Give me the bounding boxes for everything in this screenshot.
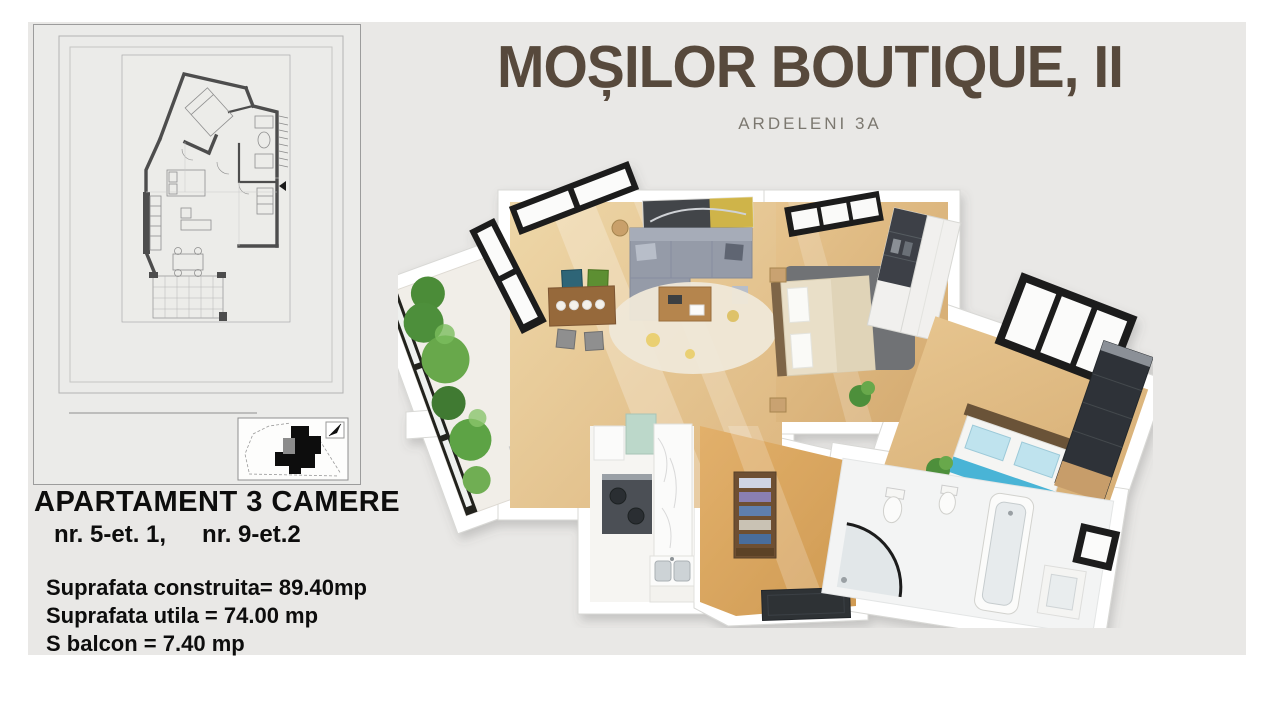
bed-1: [771, 276, 875, 377]
sofa-pillow: [635, 243, 657, 261]
area-line-usable: Suprafata utila = 74.00 mp: [46, 602, 367, 630]
dining-chair-teal: [562, 269, 583, 288]
content-area: MOȘILOR BOUTIQUE, II ARDELENI 3A APARTAM…: [28, 22, 1246, 655]
area-line-balcony: S balcon = 7.40 mp: [46, 630, 367, 658]
coffee-table: [659, 287, 711, 321]
apartment-heading: APARTAMENT 3 CAMERE: [34, 486, 400, 519]
kitchen-fridge: [594, 426, 624, 460]
technical-plan-svg: [33, 24, 361, 485]
kitchen-cabinet-mint: [626, 414, 656, 454]
dining-chair-green: [588, 270, 609, 289]
site-plan-inset: [238, 418, 348, 480]
kitchen-sink: [650, 556, 694, 586]
project-subtitle: ARDELENI 3A: [430, 114, 1190, 134]
wall-artwork: [643, 197, 754, 231]
kitchen-stove: [602, 474, 652, 534]
apartment-areas: Suprafata construita= 89.40mp Suprafata …: [46, 574, 367, 658]
dining-chair-gray-2: [584, 331, 603, 350]
side-table: [612, 220, 628, 236]
apartment-units: nr. 5-et. 1,nr. 9-et.2: [54, 521, 301, 549]
nightstand-2: [770, 398, 786, 412]
area-line-constructed: Suprafata construita= 89.40mp: [46, 574, 367, 602]
apartment-3d: [398, 161, 1153, 628]
kitchen-counter: [654, 424, 692, 558]
unit-number-2: nr. 9-et.2: [202, 521, 301, 548]
floorplan-3d-render: [398, 158, 1153, 628]
header: MOȘILOR BOUTIQUE, II ARDELENI 3A: [430, 34, 1190, 134]
floorplan-3d-svg: [398, 158, 1153, 628]
unit-number-1: nr. 5-et. 1,: [54, 521, 166, 548]
hall-shelf: [734, 472, 776, 558]
nightstand-1: [770, 268, 786, 282]
technical-plan-panel: [33, 24, 361, 485]
project-title: MOȘILOR BOUTIQUE, II: [430, 33, 1190, 102]
plan-west-wall: [143, 192, 150, 254]
flyer-page: MOȘILOR BOUTIQUE, II ARDELENI 3A APARTAM…: [0, 0, 1270, 714]
highlighted-unit: [283, 438, 295, 454]
dining-chair-gray-1: [556, 329, 576, 349]
kitchen: [590, 414, 694, 602]
sofa-pillow-dark: [724, 243, 743, 261]
dining-table: [548, 286, 615, 326]
